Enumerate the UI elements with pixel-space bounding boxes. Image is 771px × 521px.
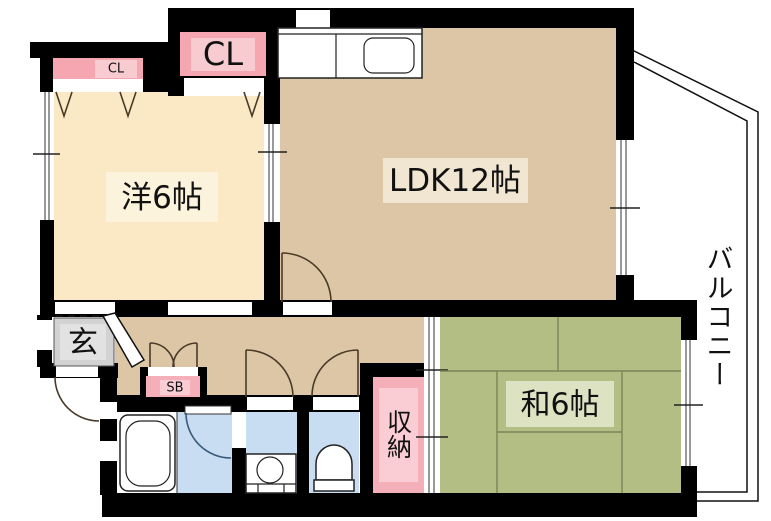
ldk-label: LDK12帖 — [389, 163, 521, 199]
entrance-door-arc — [55, 377, 99, 421]
washbasin — [246, 454, 296, 493]
storage-closet: 収納 — [373, 377, 424, 493]
closet-main: CL — [180, 32, 266, 76]
japanese-room-label-group: 和6帖 — [506, 381, 614, 427]
washroom-floor — [177, 412, 232, 493]
balcony-label: バルコニー — [702, 245, 733, 390]
ldk-label-group: LDK12帖 — [383, 158, 528, 203]
entrance-label: 玄 — [68, 326, 98, 361]
shoebox-label: SB — [166, 381, 183, 396]
kitchen-counter — [278, 28, 422, 78]
floorplan: CL CL SB 収納 玄 — [0, 0, 771, 521]
western-room-label: 洋6帖 — [121, 180, 203, 216]
japanese-room-label: 和6帖 — [520, 388, 599, 423]
bathtub — [120, 415, 175, 491]
closet-main-label: CL — [203, 35, 243, 73]
storage-label: 収納 — [384, 409, 413, 459]
shoebox: SB — [146, 376, 200, 397]
floorplan-drawing: CL CL SB 収納 玄 — [0, 0, 771, 521]
toilet — [314, 445, 354, 491]
closet-small: CL — [53, 58, 143, 79]
closet-small-label: CL — [108, 62, 125, 77]
bath-door-leaf — [185, 406, 231, 414]
western-room-label-group: 洋6帖 — [106, 172, 218, 222]
